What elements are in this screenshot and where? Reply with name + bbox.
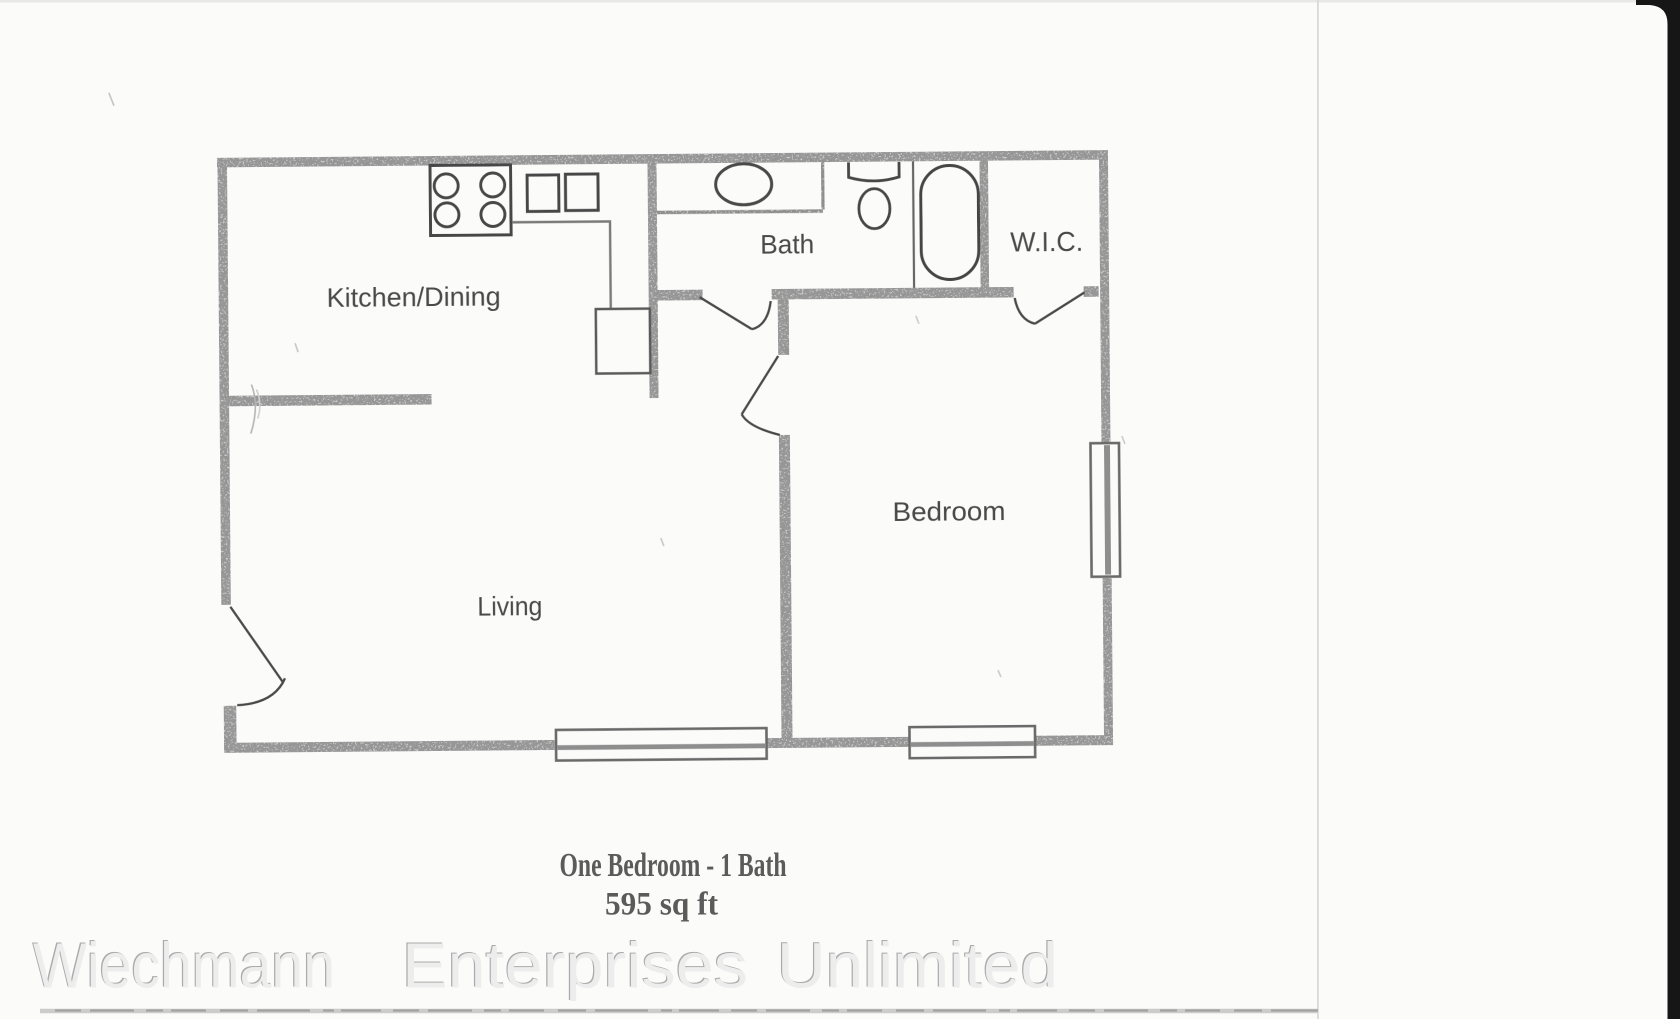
svg-text:Living: Living [477,591,542,622]
svg-text:Bath: Bath [760,229,814,259]
svg-text:595 sq ft: 595 sq ft [605,887,718,923]
svg-text:Bedroom: Bedroom [892,496,1005,527]
svg-text:Kitchen/Dining: Kitchen/Dining [327,281,501,313]
svg-text:One Bedroom - 1 Bath: One Bedroom - 1 Bath [560,847,787,884]
svg-text:WiechmannEnterprisesUnlimited: WiechmannEnterprisesUnlimited [33,930,1058,1002]
svg-text:W.I.C.: W.I.C. [1010,226,1083,258]
